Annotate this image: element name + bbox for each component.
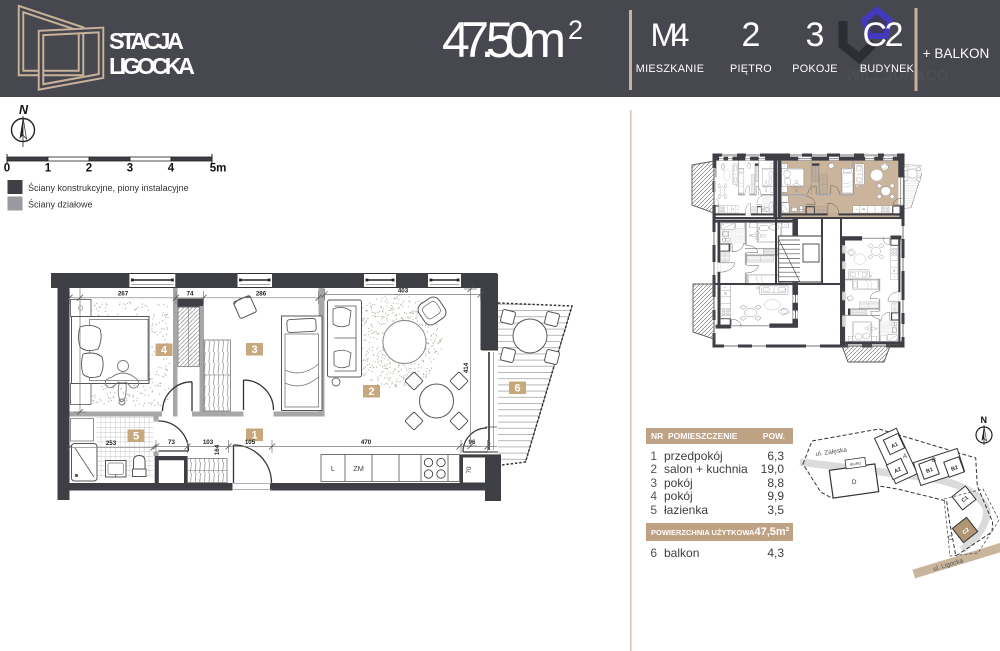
svg-text:470: 470 <box>361 439 372 446</box>
svg-text:286: 286 <box>256 291 267 298</box>
svg-text:N: N <box>981 415 988 425</box>
svg-text:96: 96 <box>469 439 476 446</box>
svg-text:B: B <box>932 458 936 464</box>
svg-text:164: 164 <box>214 444 221 455</box>
svg-text:403: 403 <box>398 288 409 295</box>
svg-text:74: 74 <box>187 291 194 298</box>
svg-text:1: 1 <box>45 163 52 175</box>
svg-text:0: 0 <box>4 163 10 175</box>
svg-text:A: A <box>903 454 907 460</box>
svg-text:4: 4 <box>168 163 175 175</box>
svg-text:4: 4 <box>161 345 168 357</box>
svg-text:ul. Załęska: ul. Załęska <box>815 447 847 458</box>
svg-text:70: 70 <box>466 466 473 473</box>
svg-text:2: 2 <box>86 163 92 175</box>
svg-text:73: 73 <box>168 439 175 446</box>
svg-text:Ściany działowe: Ściany działowe <box>28 199 93 210</box>
svg-text:L: L <box>331 464 335 473</box>
svg-text:6: 6 <box>514 383 520 395</box>
svg-text:253: 253 <box>106 440 117 447</box>
svg-text:267: 267 <box>118 291 129 298</box>
svg-text:105: 105 <box>245 439 256 446</box>
svg-text:103: 103 <box>203 439 214 446</box>
svg-text:3: 3 <box>251 344 257 356</box>
svg-text:5: 5 <box>133 431 139 443</box>
svg-text:414: 414 <box>463 362 470 373</box>
svg-text:2: 2 <box>368 386 374 398</box>
svg-text:5m: 5m <box>210 163 227 175</box>
svg-text:3: 3 <box>127 163 133 175</box>
svg-text:N: N <box>19 103 29 117</box>
svg-text:Ściany konstrukcyjne, piony in: Ściany konstrukcyjne, piony instalacyjne <box>28 182 189 193</box>
svg-text:ZM: ZM <box>353 464 364 473</box>
